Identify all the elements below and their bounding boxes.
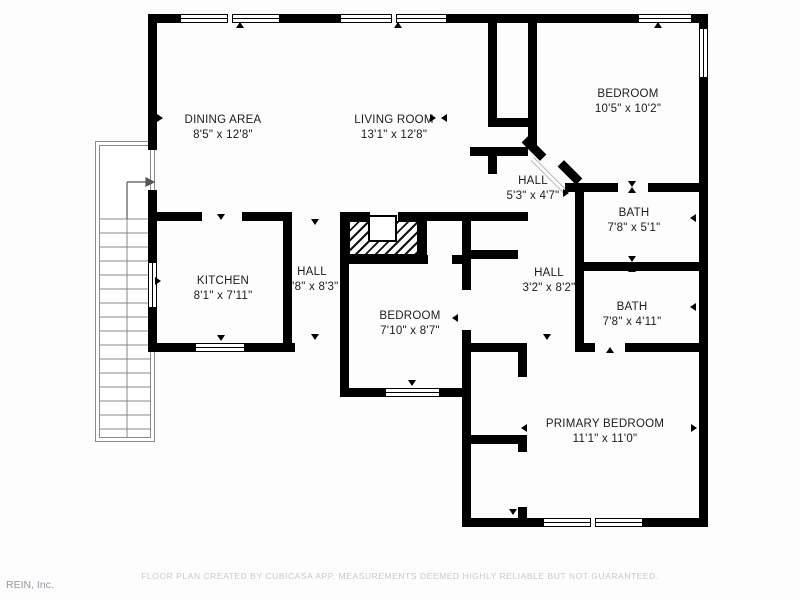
room-name: HALL: [506, 174, 559, 189]
room-dims: 10'5" x 10'2": [595, 102, 661, 117]
dimension-tick: [430, 114, 436, 122]
wall: [340, 255, 428, 264]
dimension-tick: [628, 187, 636, 193]
wall: [518, 435, 527, 452]
room-dims: 11'1" x 11'0": [546, 432, 664, 447]
room-dims: 8'1" x 7'11": [194, 289, 253, 304]
dimension-tick: [691, 424, 697, 432]
room-dims: 7'8" x 5'1": [607, 221, 660, 236]
dimension-tick: [217, 335, 225, 341]
dimension-tick: [690, 303, 696, 311]
wall: [462, 518, 543, 527]
wall: [283, 221, 292, 343]
window: [385, 388, 440, 397]
wall: [575, 271, 584, 352]
wall: [565, 183, 618, 192]
wall: [528, 127, 537, 148]
room-label-dining-area: DINING AREA 8'5" x 12'8": [185, 113, 262, 143]
dimension-tick: [311, 219, 319, 225]
window: [195, 343, 245, 352]
dimension-tick: [543, 334, 551, 340]
room-dims: 7'8" x 4'11": [603, 315, 662, 330]
dimension-tick: [521, 424, 527, 432]
wall: [518, 507, 527, 518]
wall: [699, 14, 708, 28]
room-label-bath-upper: BATH 7'8" x 5'1": [607, 206, 660, 236]
window: [148, 262, 157, 308]
room-label-bedroom-mid: BEDROOM 7'10" x 8'7": [379, 309, 440, 339]
dimension-tick: [563, 189, 569, 197]
dimension-tick: [157, 114, 163, 122]
wall: [280, 14, 340, 23]
wall: [245, 343, 295, 352]
room-label-hall-lower: HALL 3'2" x 8'2": [522, 266, 575, 296]
fireplace-firebox: [368, 215, 397, 242]
wall: [148, 308, 157, 352]
wall: [148, 14, 157, 150]
wall: [470, 147, 528, 156]
dimension-tick: [690, 214, 696, 222]
dimension-tick: [236, 22, 244, 28]
wall: [528, 23, 537, 127]
window: [638, 14, 692, 23]
dimension-tick: [408, 380, 416, 386]
window-mullion: [590, 518, 596, 527]
dimension-tick: [452, 314, 458, 322]
wall: [643, 518, 708, 527]
dimension-tick: [441, 114, 447, 122]
window-pane-line: [386, 392, 439, 393]
wall: [349, 212, 370, 221]
dimension-tick: [606, 347, 614, 353]
wall: [340, 212, 349, 397]
wall: [157, 212, 202, 221]
wall: [148, 190, 157, 262]
room-name: BEDROOM: [595, 87, 661, 102]
room-label-bedroom-top: BEDROOM 10'5" x 10'2": [595, 87, 661, 117]
window: [180, 14, 280, 23]
room-name: BATH: [603, 300, 662, 315]
room-dims: 3'2" x 8'2": [522, 281, 575, 296]
room-label-bath-lower: BATH 7'8" x 4'11": [603, 300, 662, 330]
room-name: HALL: [285, 265, 338, 280]
wall: [575, 262, 708, 271]
dimension-tick: [628, 266, 636, 272]
dimension-tick: [155, 277, 161, 285]
window: [543, 518, 643, 527]
room-name: PRIMARY BEDROOM: [546, 417, 664, 432]
room-name: LIVING ROOM: [354, 113, 433, 128]
wall: [488, 23, 497, 118]
wall: [699, 77, 708, 527]
wall: [575, 192, 584, 262]
dimension-tick: [217, 214, 225, 220]
wall: [518, 343, 527, 377]
dimension-tick: [509, 509, 517, 515]
room-dims: 3'8" x 8'3": [285, 280, 338, 295]
wall: [488, 156, 497, 174]
dimension-tick: [394, 22, 402, 28]
wall: [471, 250, 518, 259]
dimension-tick: [654, 22, 662, 28]
wall: [625, 343, 708, 352]
window-pane-line: [196, 347, 244, 348]
window-pane-line: [639, 18, 691, 19]
wall: [447, 14, 638, 23]
room-dims: 8'5" x 12'8": [185, 128, 262, 143]
room-dims: 7'10" x 8'7": [379, 324, 440, 339]
dimension-tick: [311, 334, 319, 340]
angled-wall: [558, 160, 583, 185]
room-name: BATH: [607, 206, 660, 221]
room-label-living-room: LIVING ROOM 13'1" x 12'8": [354, 113, 433, 143]
wall: [575, 343, 595, 352]
room-name: DINING AREA: [185, 113, 262, 128]
room-name: BEDROOM: [379, 309, 440, 324]
window-mullion: [227, 14, 233, 23]
dimension-tick: [628, 256, 636, 262]
window-pane-line: [152, 263, 153, 307]
watermark-text: REIN, Inc.: [6, 579, 54, 591]
wall: [242, 212, 292, 221]
wall: [462, 397, 471, 527]
floor-plan: DINING AREA 8'5" x 12'8" LIVING ROOM 13'…: [0, 0, 800, 600]
room-name: HALL: [522, 266, 575, 281]
room-name: KITCHEN: [194, 274, 253, 289]
room-dims: 13'1" x 12'8": [354, 128, 433, 143]
room-dims: 5'3" x 4'7": [506, 189, 559, 204]
wall: [648, 183, 708, 192]
disclaimer-text: FLOOR PLAN CREATED BY CUBICASA APP. MEAS…: [0, 571, 800, 581]
wall: [462, 218, 471, 290]
room-label-hall-upper: HALL 5'3" x 4'7": [506, 174, 559, 204]
room-label-primary-bedroom: PRIMARY BEDROOM 11'1" x 11'0": [546, 417, 664, 447]
window: [699, 28, 708, 78]
window-pane-line: [703, 29, 704, 77]
wall: [462, 330, 471, 397]
room-label-kitchen: KITCHEN 8'1" x 7'11": [194, 274, 253, 304]
room-label-hall-mid: HALL 3'8" x 8'3": [285, 265, 338, 295]
